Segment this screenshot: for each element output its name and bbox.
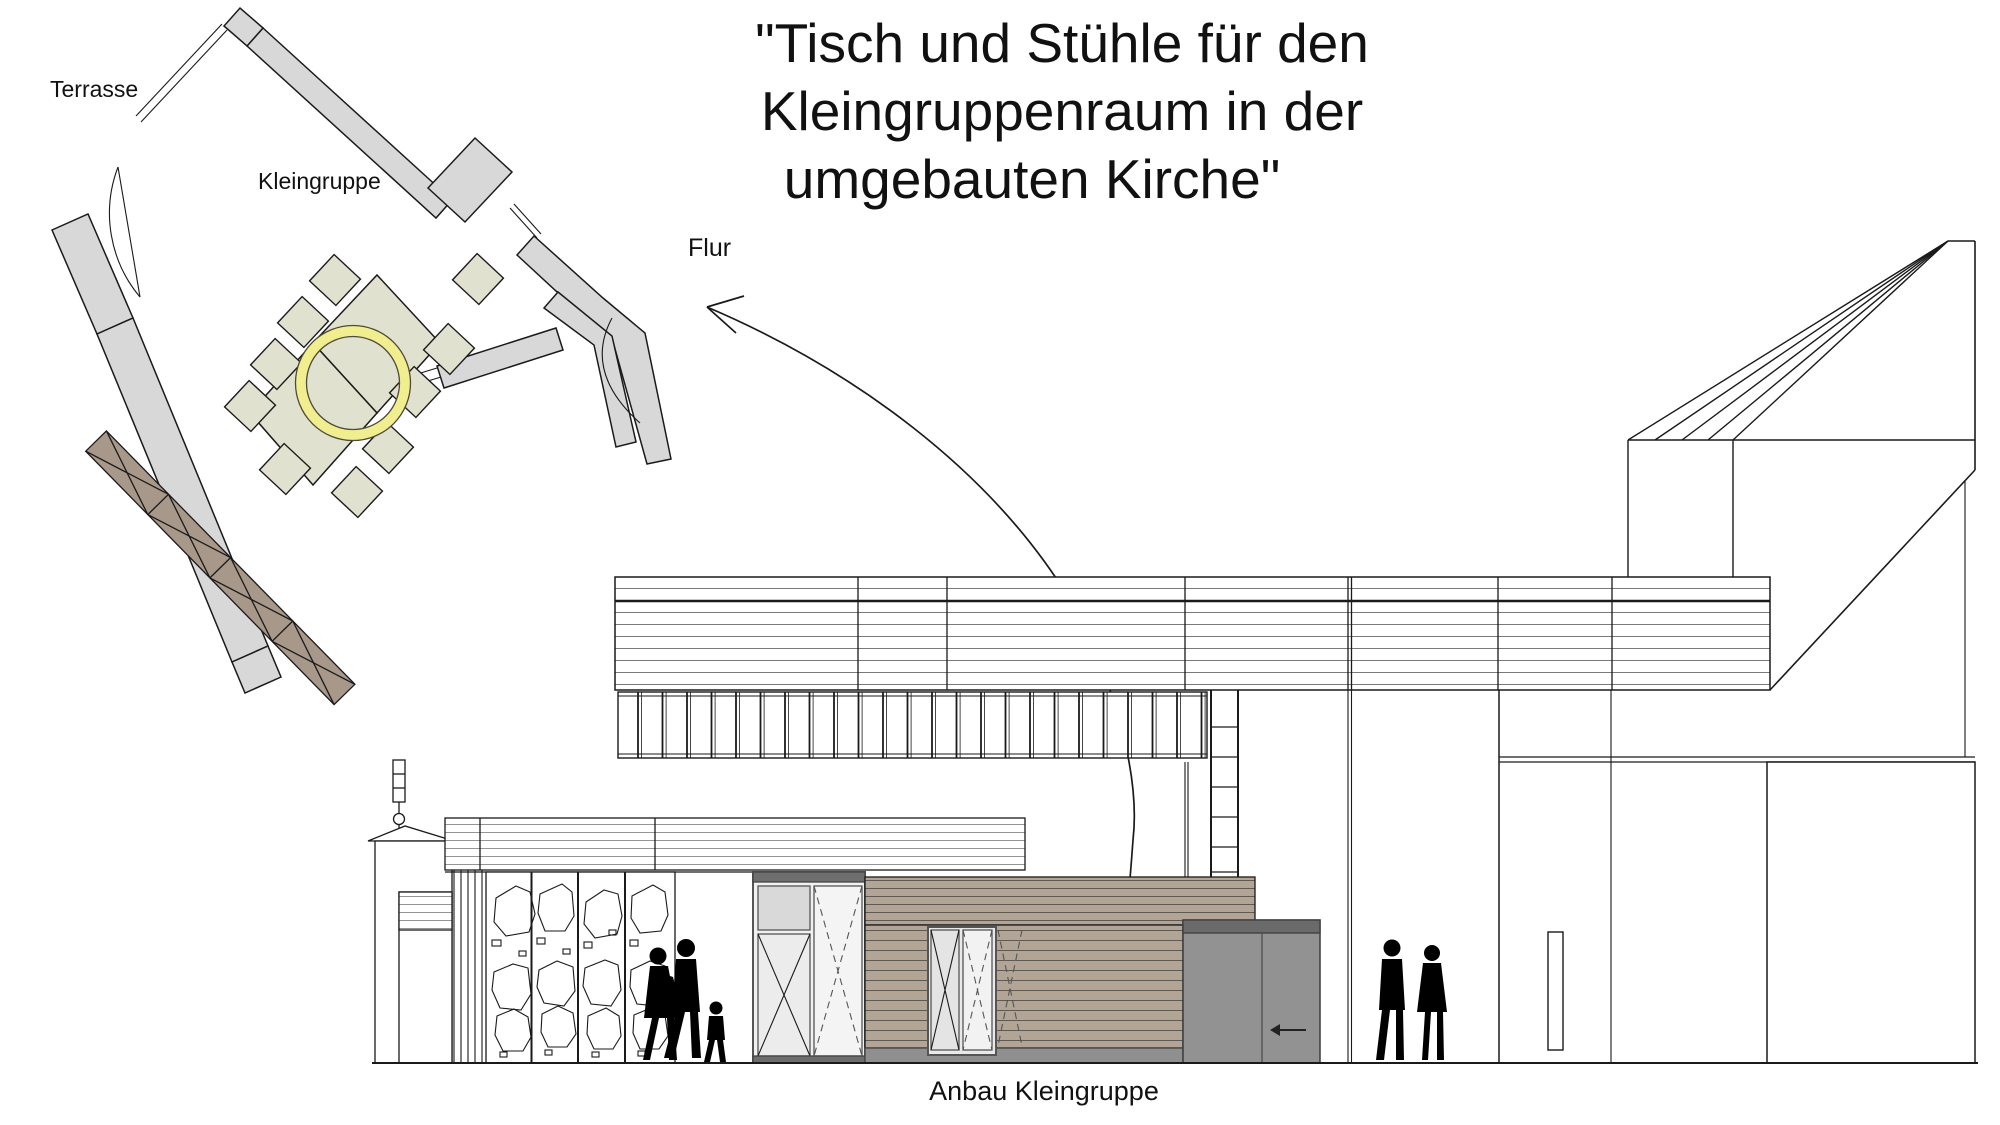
annex-plinth bbox=[865, 1048, 1183, 1063]
nave-block bbox=[1499, 481, 1975, 1063]
annex-door bbox=[928, 927, 996, 1055]
annex-siding bbox=[865, 925, 1183, 1048]
slit-window bbox=[1548, 932, 1563, 1050]
drawing-svg: Terrasse Kleingruppe Flur "Tisch und Stü… bbox=[0, 0, 2000, 1125]
title-line-1: "Tisch und Stühle für den bbox=[755, 12, 1369, 74]
person-woman-icon bbox=[1417, 945, 1447, 1060]
church-people bbox=[1376, 940, 1447, 1061]
wall-envelope-upper-left bbox=[52, 214, 133, 334]
label-terrasse: Terrasse bbox=[50, 76, 138, 102]
person-child-icon bbox=[704, 1002, 726, 1063]
chair bbox=[453, 254, 504, 305]
art-glass-wall bbox=[486, 872, 675, 1063]
label-kleingruppe: Kleingruppe bbox=[258, 168, 381, 194]
label-anbau-kleingruppe: Anbau Kleingruppe bbox=[929, 1076, 1159, 1106]
terrace-door-leaf bbox=[118, 167, 140, 297]
entrance-door-transom bbox=[758, 886, 810, 930]
roof-ladder bbox=[1211, 690, 1238, 877]
person-man-icon bbox=[1376, 940, 1405, 1061]
title-line-3: umgebauten Kirche" bbox=[784, 148, 1281, 210]
chair bbox=[310, 255, 361, 306]
chair bbox=[332, 467, 383, 518]
annex-roof-band bbox=[865, 877, 1255, 925]
title-block: "Tisch und Stühle für den Kleingruppenra… bbox=[755, 12, 1369, 210]
entrance-door bbox=[753, 872, 865, 1063]
label-flur: Flur bbox=[688, 234, 731, 262]
mast bbox=[393, 760, 405, 802]
foyer-fascia bbox=[445, 818, 1025, 872]
church-fascia-band bbox=[615, 577, 1770, 690]
corner-columns bbox=[454, 870, 482, 1063]
title-line-2: Kleingruppenraum in der bbox=[761, 80, 1363, 142]
architectural-drawing: Terrasse Kleingruppe Flur "Tisch und Stü… bbox=[0, 0, 2000, 1125]
clerestory-windows bbox=[618, 692, 1207, 758]
sliding-door-block bbox=[1183, 920, 1320, 1063]
bell-tower bbox=[368, 760, 454, 1063]
tower-front-fascia bbox=[399, 892, 452, 930]
mast-ball-icon bbox=[394, 814, 405, 825]
tower-cap bbox=[368, 826, 454, 841]
